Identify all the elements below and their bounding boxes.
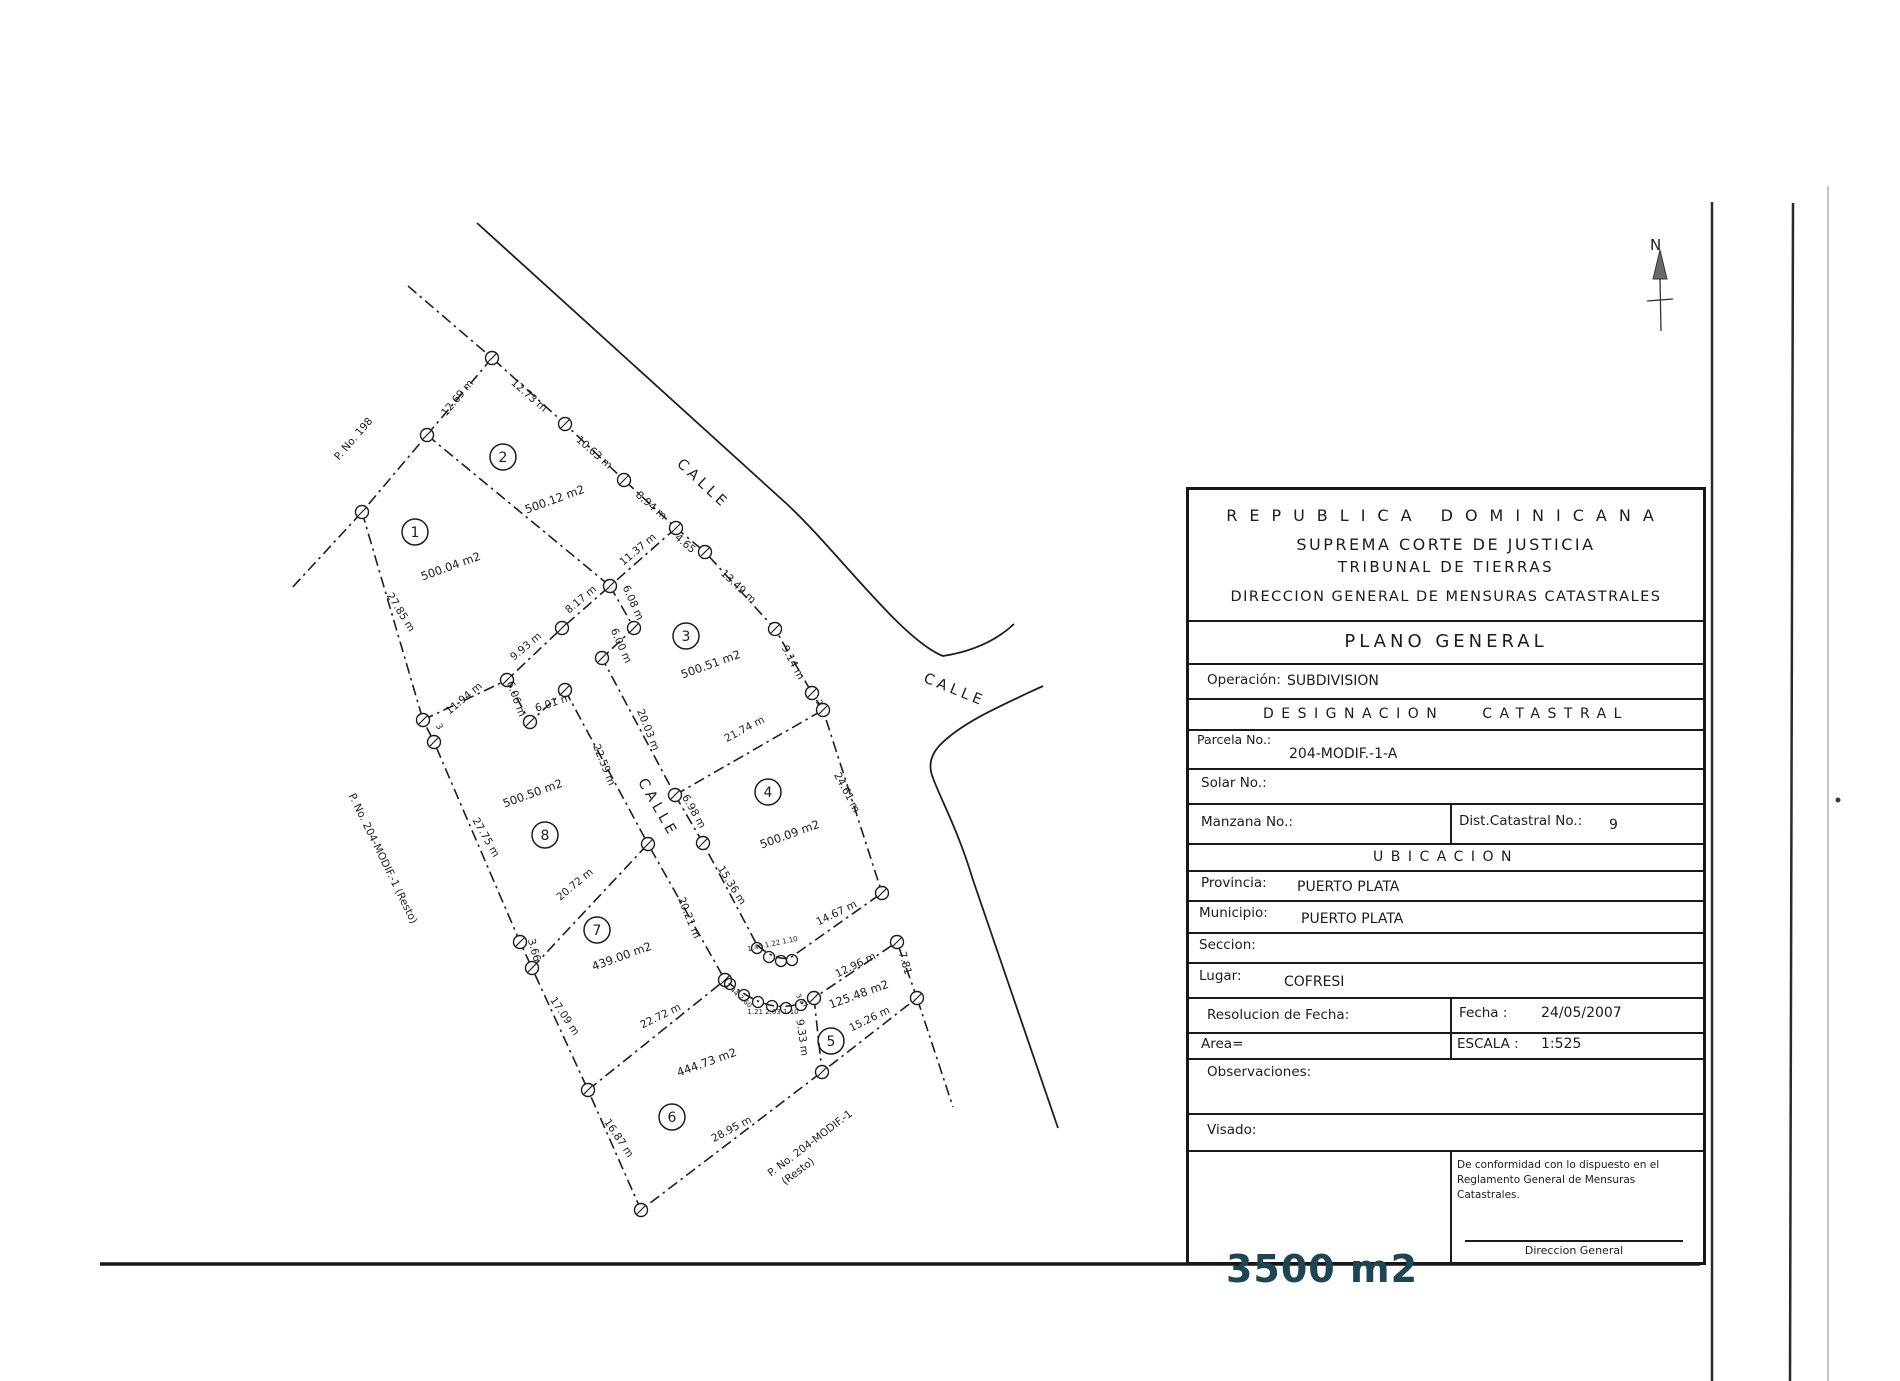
parcel-number: 3 bbox=[682, 629, 691, 645]
fecha-label: Fecha : bbox=[1459, 1005, 1507, 1021]
ubicacion-title: UBICACION bbox=[1189, 849, 1703, 865]
measurement-label: 4.65 bbox=[672, 532, 698, 556]
measurement-label: 8.17 m bbox=[563, 583, 599, 616]
row-parcela: Parcela No.: 204-MODIF.-1-A bbox=[1189, 729, 1703, 770]
lugar-value: COFRESI bbox=[1284, 974, 1344, 990]
parcel-number: 6 bbox=[668, 1110, 677, 1126]
row-visado: Visado: bbox=[1189, 1113, 1703, 1152]
boundary-lines bbox=[290, 286, 953, 1210]
escala-value: 1:525 bbox=[1541, 1036, 1581, 1052]
measurement-label: 7.81 bbox=[896, 950, 914, 976]
measurement-label: 6.01 m bbox=[534, 692, 573, 715]
row-manzana: Manzana No.: Dist.Catastral No.: 9 bbox=[1189, 803, 1703, 845]
provincia-label: Provincia: bbox=[1201, 875, 1267, 891]
measurement-label: 17.09 m bbox=[547, 995, 581, 1038]
parcel-area-label: 500.51 m2 bbox=[679, 647, 742, 682]
designacion-word-1: DESIGNACION bbox=[1263, 700, 1444, 731]
parcel-area-label: 500.09 m2 bbox=[758, 817, 821, 852]
measurement-label: 24.61 m bbox=[831, 771, 862, 815]
dist-catastral-value: 9 bbox=[1609, 817, 1618, 833]
municipio-value: PUERTO PLATA bbox=[1301, 911, 1403, 927]
conformidad-line-1: De conformidad con lo dispuesto en el bbox=[1457, 1158, 1693, 1173]
row-provincia: Provincia: PUERTO PLATA bbox=[1189, 870, 1703, 902]
plano-general-title: PLANO GENERAL bbox=[1189, 631, 1703, 652]
measurement-label: 22.59 m bbox=[590, 742, 617, 787]
title-block: REPUBLICA DOMINICANA SUPREMA CORTE DE JU… bbox=[1186, 487, 1706, 1265]
conformidad-line-2: Reglamento General de Mensuras Catastral… bbox=[1457, 1173, 1693, 1203]
row-solar: Solar No.: bbox=[1189, 768, 1703, 805]
municipio-label: Municipio: bbox=[1199, 905, 1268, 921]
solar-label: Solar No.: bbox=[1201, 775, 1267, 791]
parcel-area-label: 500.50 m2 bbox=[501, 776, 564, 811]
measurement-label: 12.96 m bbox=[833, 950, 877, 980]
row-observaciones: Observaciones: bbox=[1189, 1058, 1703, 1115]
measurement-label: 20.21 m bbox=[675, 895, 702, 940]
parcela-value: 204-MODIF.-1-A bbox=[1289, 746, 1397, 762]
measurement-label: 13.49 m bbox=[718, 568, 758, 607]
parcel-boundaries bbox=[290, 286, 953, 1210]
parcel-area-label: 439.00 m2 bbox=[590, 939, 653, 974]
row-resolucion: Resolucion de Fecha: Fecha : 24/05/2007 bbox=[1189, 997, 1703, 1034]
curve-segment-label: 1.21 2.03 1.10 bbox=[747, 1008, 798, 1016]
row-plano: PLANO GENERAL bbox=[1189, 620, 1703, 665]
measurement-label: 6.98 m bbox=[679, 792, 708, 830]
measurement-label: 9.14 m bbox=[779, 643, 807, 681]
street-label: CALLE bbox=[673, 456, 732, 512]
dist-catastral-label: Dist.Catastral No.: bbox=[1459, 813, 1582, 829]
row-seccion: Seccion: bbox=[1189, 932, 1703, 964]
escala-label: ESCALA : bbox=[1457, 1036, 1519, 1052]
visado-label: Visado: bbox=[1207, 1122, 1256, 1138]
title-tribunal: TRIBUNAL DE TIERRAS bbox=[1189, 558, 1703, 576]
measurement-label: 21.74 m bbox=[723, 714, 767, 745]
parcel-number: 1 bbox=[411, 525, 420, 541]
operacion-label: Operación: bbox=[1207, 672, 1281, 688]
lugar-label: Lugar: bbox=[1199, 968, 1242, 984]
measurement-label: 12.73 m bbox=[509, 377, 550, 415]
north-arrow: N bbox=[1647, 236, 1673, 331]
row-designacion: DESIGNACION CATASTRAL bbox=[1189, 698, 1703, 731]
parcel-number: 2 bbox=[499, 450, 508, 466]
parcela-label: Parcela No.: bbox=[1197, 732, 1271, 747]
measurement-label: 20.03 m bbox=[634, 707, 661, 752]
measurement-label: 15.36 m bbox=[715, 864, 748, 907]
observaciones-label: Observaciones: bbox=[1207, 1064, 1311, 1080]
fecha-cell-divider bbox=[1450, 997, 1452, 1032]
measurement-label: 6.06 m bbox=[504, 680, 528, 719]
area-stamp: 3500 m2 bbox=[1217, 1247, 1427, 1291]
seccion-label: Seccion: bbox=[1199, 937, 1256, 953]
street-label: CALLE bbox=[921, 671, 988, 710]
point-number-label: 3 bbox=[433, 722, 444, 732]
measurement-label: 15.26 m bbox=[847, 1004, 891, 1034]
row-ubicacion: UBICACION bbox=[1189, 843, 1703, 872]
title-suprema-corte: SUPREMA CORTE DE JUSTICIA bbox=[1189, 535, 1703, 554]
row-signature: 3500 m2 De conformidad con lo dispuesto … bbox=[1189, 1150, 1703, 1262]
north-arrowhead-icon bbox=[1653, 250, 1667, 279]
row-lugar: Lugar: COFRESI bbox=[1189, 962, 1703, 999]
resolucion-label: Resolucion de Fecha: bbox=[1207, 1007, 1349, 1023]
road-edge-right bbox=[930, 686, 1058, 1128]
measurement-label: 16.87 m bbox=[601, 1117, 635, 1160]
measurement-label: 10.63 m bbox=[574, 434, 615, 472]
measurement-label: 8.94 m bbox=[633, 489, 669, 522]
measurement-label: 12.69 m bbox=[439, 377, 476, 418]
escala-cell-divider bbox=[1450, 1032, 1452, 1058]
operacion-value: SUBDIVISION bbox=[1287, 673, 1379, 689]
road-edges bbox=[477, 223, 1058, 1128]
neighbor-parcel-label: P. No. 204-MODIF.-1 (Resto) bbox=[346, 792, 420, 926]
parcel-area-label: 500.12 m2 bbox=[523, 482, 586, 517]
parcel-number: 5 bbox=[827, 1034, 836, 1050]
measurement-label: 6.08 m bbox=[620, 583, 646, 622]
parcel-area-label: 444.73 m2 bbox=[675, 1045, 738, 1080]
row-municipio: Municipio: PUERTO PLATA bbox=[1189, 900, 1703, 934]
scanned-plan-page: N 12.69 m12.73 m10.63 m8.94 m4.6513.49 m… bbox=[0, 0, 1900, 1381]
curve-point-marker bbox=[776, 956, 787, 967]
parcel-number: 8 bbox=[541, 828, 550, 844]
measurement-label: 9.93 m bbox=[508, 630, 544, 663]
provincia-value: PUERTO PLATA bbox=[1297, 879, 1399, 895]
area-label: Area= bbox=[1201, 1036, 1243, 1052]
north-arrow-stem bbox=[1660, 279, 1661, 331]
measurement-label: 22.72 m bbox=[638, 1001, 682, 1031]
fecha-value: 24/05/2007 bbox=[1541, 1005, 1622, 1021]
measurement-label: 11.94 m bbox=[443, 680, 484, 717]
neighbor-parcel-label: P. No. 198 bbox=[332, 415, 375, 462]
signature-line bbox=[1465, 1240, 1683, 1242]
direccion-general-label: Direccion General bbox=[1465, 1244, 1683, 1257]
right-edge-line-2 bbox=[1790, 203, 1793, 1381]
curve-segment-label: 1.46 1.22 1.10 bbox=[747, 935, 799, 953]
row-area: Area= ESCALA : 1:525 bbox=[1189, 1032, 1703, 1060]
measurement-label: 27.85 m bbox=[384, 591, 417, 634]
row-operacion: Operación: SUBDIVISION bbox=[1189, 663, 1703, 700]
parcel-number: 7 bbox=[593, 923, 602, 939]
signature-cell-divider bbox=[1450, 1150, 1452, 1262]
parcel-number: 4 bbox=[764, 785, 773, 801]
title-direccion-mensuras: DIRECCION GENERAL DE MENSURAS CATASTRALE… bbox=[1189, 589, 1703, 605]
parcel-area-label: 500.04 m2 bbox=[419, 549, 482, 584]
manzana-label: Manzana No.: bbox=[1201, 814, 1293, 830]
manzana-cell-divider bbox=[1450, 803, 1452, 843]
designacion-word-2: CATASTRAL bbox=[1482, 700, 1629, 731]
plan-labels: 12.69 m12.73 m10.63 m8.94 m4.6513.49 m9.… bbox=[332, 377, 988, 1188]
curve-point-marker bbox=[764, 952, 775, 963]
title-republic: REPUBLICA DOMINICANA bbox=[1189, 506, 1703, 525]
scan-speck bbox=[1836, 798, 1841, 803]
measurement-label: 20.72 m bbox=[554, 866, 595, 903]
measurement-label: 9.33 m bbox=[793, 1018, 810, 1056]
